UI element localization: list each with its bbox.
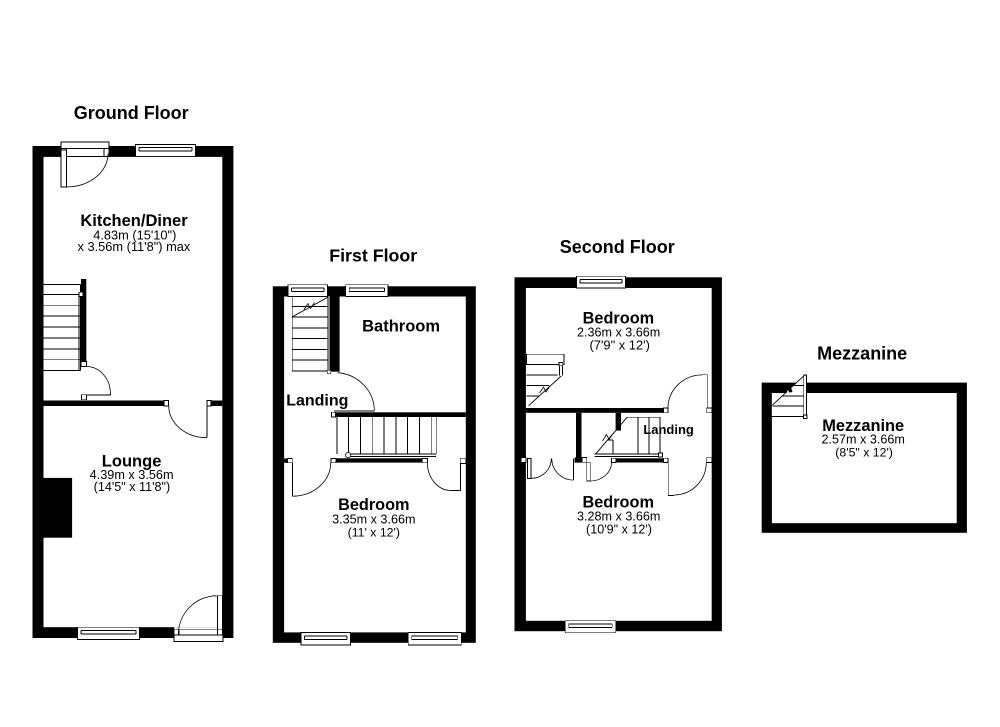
svg-text:(8'5" x 12'): (8'5" x 12') — [835, 446, 893, 460]
svg-text:(7'9" x 12'): (7'9" x 12') — [590, 338, 650, 353]
svg-text:(14'5" x 11'8"): (14'5" x 11'8") — [94, 480, 171, 494]
svg-text:(10'9" x 12'): (10'9" x 12') — [586, 522, 652, 536]
svg-text:Ground Floor: Ground Floor — [74, 103, 189, 123]
svg-text:Bedroom: Bedroom — [338, 496, 409, 514]
svg-text:3.35m x 3.66m: 3.35m x 3.66m — [332, 513, 415, 527]
svg-text:Landing: Landing — [643, 422, 694, 437]
svg-text:Bathroom: Bathroom — [362, 318, 440, 336]
svg-text:Second Floor: Second Floor — [560, 237, 675, 257]
svg-text:x 3.56m (11'8") max: x 3.56m (11'8") max — [78, 239, 191, 254]
svg-text:First Floor: First Floor — [329, 245, 417, 265]
svg-text:Mezzanine: Mezzanine — [817, 343, 907, 363]
svg-text:(11' x 12'): (11' x 12') — [348, 526, 400, 540]
svg-text:Landing: Landing — [286, 392, 348, 409]
